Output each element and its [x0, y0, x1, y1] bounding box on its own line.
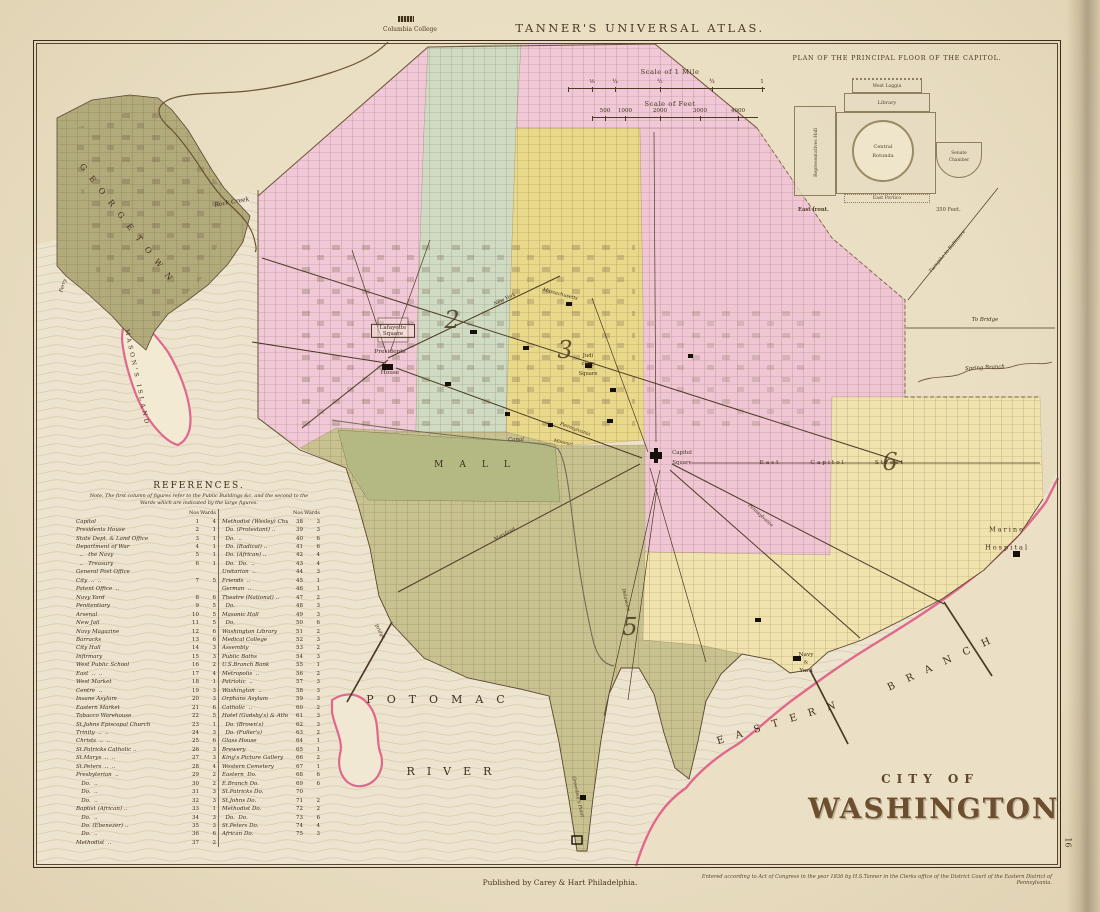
map-label-capitol-square-2: Square — [672, 461, 692, 467]
reference-row: Do. (Radical) ..416 — [222, 543, 320, 551]
map-label-ward-3: 3 — [557, 337, 572, 363]
map-label-marine-hospital-2: Hospital — [985, 544, 1029, 551]
col-header-no: Nos — [184, 509, 199, 517]
map-sheet: TANNER'S UNIVERSAL ATLAS. Columbia Colle… — [0, 0, 1100, 912]
map-label-georgetown: GEORGETOWN — [77, 163, 179, 290]
reference-row: Do. ..302 — [76, 780, 216, 788]
reference-row: Do. (Protestant) ..393 — [222, 526, 320, 534]
scale-tick — [625, 116, 626, 121]
reference-row: Do. ..313 — [76, 788, 216, 796]
reference-row: St.Patricks Do.70 — [222, 788, 320, 796]
reference-row: Methodist ..372 — [76, 839, 216, 847]
publisher-credit: Published by Carey & Hart Philadelphia. — [400, 878, 720, 887]
reference-row: St.Patricks Catholic ..263 — [76, 746, 216, 754]
scale-tick-label: ½ — [657, 79, 662, 85]
map-area: GEORGETOWNRock CreekFerryMASON'S ISLANDL… — [34, 41, 1060, 867]
reference-row: Washington ..583 — [222, 687, 320, 695]
scale-tick — [738, 116, 739, 121]
map-label-ferry: Ferry — [59, 279, 68, 294]
reference-row: Tobacco Warehouse225 — [76, 712, 216, 720]
scale-tick-label: 4000 — [731, 108, 745, 114]
reference-row: West Public School162 — [76, 661, 216, 669]
reference-row: Do. ..366 — [76, 830, 216, 838]
map-label-navy-yard-2: Yard — [799, 668, 812, 674]
west-loggia: West Loggia — [852, 78, 922, 93]
references-column-left: Nos Wards Capitol14Presidents House21Sta… — [76, 509, 219, 847]
reference-row: Friends ..451 — [222, 577, 320, 585]
map-label-eastern: EASTERN — [716, 697, 849, 747]
reference-row: Presidents House21 — [76, 526, 216, 534]
reference-row: St.Marys .. ..273 — [76, 754, 216, 762]
map-label-potomac: POTOMAC — [366, 694, 517, 706]
col-header-no: Nos — [288, 509, 303, 517]
reference-row: City .. ..75 — [76, 577, 216, 585]
reference-row: Department of War41 — [76, 543, 216, 551]
mile-scale-title: Scale of 1 Mile — [540, 68, 800, 76]
reference-row: Do. (African) ..424 — [222, 551, 320, 559]
reference-row: East .. ..174 — [76, 670, 216, 678]
scale-tick — [568, 87, 569, 92]
scale-tick-label: 1000 — [618, 108, 632, 114]
reference-row: Do. ..343 — [76, 814, 216, 822]
scale-tick — [592, 116, 593, 121]
scale-tick — [762, 87, 763, 92]
reference-row: Navy Yard86 — [76, 594, 216, 602]
map-label-presidents-house-1: Presidents — [374, 349, 405, 355]
references-column-right: Nos Wards Methodist (Wesley) Church383 D… — [222, 509, 320, 847]
scale-tick — [660, 116, 661, 121]
capitol-plan-inset: PLAN OF THE PRINCIPAL FLOOR OF THE CAPIT… — [788, 54, 1006, 220]
reference-row: Barracks136 — [76, 636, 216, 644]
reference-row: Patent Office .. — [76, 585, 216, 593]
map-label-bridge: Bridge — [373, 624, 386, 641]
reference-row: Metropolis ..562 — [222, 670, 320, 678]
references-header-right: Nos Wards — [222, 509, 320, 517]
map-label-massachusetts: Massachusetts — [542, 288, 578, 302]
reference-row: African Do.753 — [222, 830, 320, 838]
map-label-mall: MALL — [434, 461, 526, 471]
reference-row: Glass House641 — [222, 737, 320, 745]
scale-tick-label: 2000 — [653, 108, 667, 114]
reference-row: Methodist (Wesley) Church383 — [222, 518, 320, 526]
map-label-ward-6: 6 — [882, 449, 897, 475]
map-label-east-capitol-2: Capitol — [810, 460, 845, 466]
scale-tick-label: ⅛ — [589, 79, 594, 85]
reference-row: U.S.Branch Bank551 — [222, 661, 320, 669]
inset-title: PLAN OF THE PRINCIPAL FLOOR OF THE CAPIT… — [788, 54, 1006, 62]
reference-row: Masonic Hall493 — [222, 611, 320, 619]
scale-tick-label: 500 — [600, 108, 611, 114]
reference-row: Washington Library512 — [222, 628, 320, 636]
reference-row: Do. (Brown's)623 — [222, 721, 320, 729]
senate-chamber: Senate Chamber — [936, 142, 982, 178]
map-label-lafayette-square: Lafayette Square — [371, 324, 415, 338]
reference-row: Arsenal105 — [76, 611, 216, 619]
reference-row: Do. ..323 — [76, 797, 216, 805]
map-label-east-capitol-1: East — [760, 460, 781, 466]
scale-tick — [712, 87, 713, 92]
map-label-judiciary-2: ciary — [581, 362, 594, 368]
reference-row: Baptist (African) ..331 — [76, 805, 216, 813]
map-label-ward-5: 5 — [622, 614, 637, 640]
reference-row: West Market181 — [76, 678, 216, 686]
columbia-college-icon — [398, 16, 414, 22]
reference-row: Orphans Asylum593 — [222, 695, 320, 703]
east-portico: East Portico — [844, 194, 930, 203]
reference-row: .. Treasury61 — [76, 560, 216, 568]
references-header-left: Nos Wards — [76, 509, 216, 517]
map-label-to-bridge: To Bridge — [972, 318, 999, 324]
map-label-maryland: Maryland — [493, 527, 516, 543]
copyright-line: Entered according to Act of Congress in … — [700, 874, 1052, 886]
map-label-presidents-house-2: House — [381, 370, 400, 376]
scale-tick-label: 3000 — [693, 108, 707, 114]
col-header-wards: Wards — [303, 509, 320, 517]
rotunda-label-1: Central — [874, 144, 893, 150]
reference-row: E.Branch Do.696 — [222, 780, 320, 788]
reference-row: St.Peters .. ..284 — [76, 763, 216, 771]
reference-row: General Post Office — [76, 568, 216, 576]
references-panel: REFERENCES. Note. The first column of fi… — [76, 481, 322, 847]
reference-row: Presbyterian ..292 — [76, 771, 216, 779]
reference-row: King's Picture Gallery662 — [222, 754, 320, 762]
col-header-wards: Wards — [199, 509, 216, 517]
map-label-greenleafs-point: Greenleaf's Point — [570, 776, 584, 818]
west-loggia-label: West Loggia — [853, 84, 921, 89]
reference-row: Brewery651 — [222, 746, 320, 754]
scale-tick-label: ¼ — [612, 79, 617, 85]
map-label-marine-hospital-1: Marine — [989, 526, 1025, 533]
scale-tick-label: 1 — [760, 79, 764, 85]
feet-caption: 350 Feet. — [936, 207, 961, 213]
reference-row: Methodist Do.722 — [222, 805, 320, 813]
reference-row: St.Johns Do.712 — [222, 797, 320, 805]
map-title: CITY OF WASHINGTON. — [808, 772, 1052, 825]
reference-row: City Hall143 — [76, 644, 216, 652]
reference-row: Eastern Market216 — [76, 704, 216, 712]
map-label-branch: BRANCH — [886, 631, 1004, 694]
reference-row: Do. ..406 — [222, 535, 320, 543]
reference-row: Capitol14 — [76, 518, 216, 526]
scale-tick — [700, 116, 701, 121]
reference-row: Unitarian ..443 — [222, 568, 320, 576]
reference-row: Centre ..193 — [76, 687, 216, 695]
map-label-navy-yard-amp: & — [804, 660, 808, 666]
senate-label-2: Chamber — [937, 158, 981, 163]
map-label-rock-creek: Rock Creek — [214, 197, 250, 210]
map-label-judiciary-1: Judi — [583, 354, 593, 360]
map-label-turnpike: Turnpike to Baltimore — [929, 230, 968, 275]
map-label-navy-yard-1: Navy — [798, 652, 813, 658]
map-label-new-york: New York — [493, 293, 517, 308]
references-note: Note. The first column of figures refer … — [76, 493, 322, 506]
reference-row: Catholic ..602 — [222, 704, 320, 712]
reference-row: Penitentiary95 — [76, 602, 216, 610]
map-label-river: RIVER — [407, 766, 504, 778]
reference-row: Public Baths543 — [222, 653, 320, 661]
scale-tick — [592, 87, 593, 92]
page-edge-shading — [1066, 0, 1100, 912]
reference-row: Medical College523 — [222, 636, 320, 644]
reference-row: Do. Do.736 — [222, 814, 320, 822]
reference-row: German ..461 — [222, 585, 320, 593]
senate-label-1: Senate — [937, 151, 981, 156]
library-room: Library — [844, 93, 930, 112]
references-note-line2: Wards which are indicated by the large f… — [140, 500, 258, 506]
feet-scale-bar: 5001000200030004000 — [592, 117, 758, 122]
library-label: Library — [845, 100, 929, 106]
map-label-pennsylvania-1: Pennsylvania — [559, 422, 591, 438]
reference-row: Do. (Ebenezer) ..353 — [76, 822, 216, 830]
reference-row: Theatre (National) ..472 — [222, 594, 320, 602]
reference-row: St.Peters Do.744 — [222, 822, 320, 830]
atlas-title: TANNER'S UNIVERSAL ATLAS. — [470, 21, 810, 35]
map-label-ward-2: 2 — [444, 307, 459, 333]
rep-hall-label: Representatives Hall — [814, 128, 819, 177]
reference-row: Assembly532 — [222, 644, 320, 652]
columbia-college-label: Columbia College — [360, 26, 460, 33]
page-number: 16 — [1064, 837, 1073, 847]
scale-tick-label: ¾ — [709, 79, 714, 85]
map-label-pennsylvania-2: Pennsylvania — [746, 503, 773, 528]
city-of-title: CITY OF — [808, 772, 1052, 786]
map-label-capitol-square-1: Capitol — [672, 451, 692, 457]
rotunda-label-2: Rotunda — [872, 153, 893, 159]
reference-row: Do. (Fuller's)632 — [222, 729, 320, 737]
reference-row: Do.506 — [222, 619, 320, 627]
reference-row: Navy Magazine126 — [76, 628, 216, 636]
map-label-delaware: Delaware — [620, 588, 630, 612]
scale-tick — [615, 87, 616, 92]
central-rotunda: Central Rotunda — [852, 120, 914, 182]
map-label-missouri: Missouri — [553, 440, 573, 449]
reference-row: Do. Do. ..434 — [222, 560, 320, 568]
map-label-canal: Canal — [508, 438, 524, 444]
reference-row: Do.483 — [222, 602, 320, 610]
map-label-spring-branch: Spring Branch — [965, 365, 1005, 373]
scale-tick — [660, 87, 661, 92]
feet-scale-title: Scale of Feet — [540, 100, 800, 108]
map-label-masons-island: MASON'S ISLAND — [122, 329, 149, 427]
map-label-judiciary-3: Square — [579, 372, 598, 378]
scale-tick — [605, 116, 606, 121]
reference-row: Insane Asylum203 — [76, 695, 216, 703]
reference-row: Patriotic ..573 — [222, 678, 320, 686]
reference-row: Hotel (Gadsby's) & Athen.m613 — [222, 712, 320, 720]
reference-row: New Jail115 — [76, 619, 216, 627]
reference-row: Trinity .. ..243 — [76, 729, 216, 737]
reference-row: .. the Navy51 — [76, 551, 216, 559]
references-note-line1: Note. The first column of figures refer … — [90, 493, 308, 499]
east-front-caption: East front. — [798, 207, 829, 213]
washington-title: WASHINGTON. — [808, 792, 1052, 825]
reference-row: Western Cemetery671 — [222, 763, 320, 771]
mile-scale-bar: ⅛¼½¾1 — [568, 88, 765, 93]
reference-row: State Dept. & Land Office31 — [76, 535, 216, 543]
references-title: REFERENCES. — [76, 481, 322, 491]
reference-row: Christs .. ..256 — [76, 737, 216, 745]
reference-row: St.Johns Episcopal Church231 — [76, 721, 216, 729]
reference-row: Infirmary153 — [76, 653, 216, 661]
reference-row: Eastern Do.686 — [222, 771, 320, 779]
